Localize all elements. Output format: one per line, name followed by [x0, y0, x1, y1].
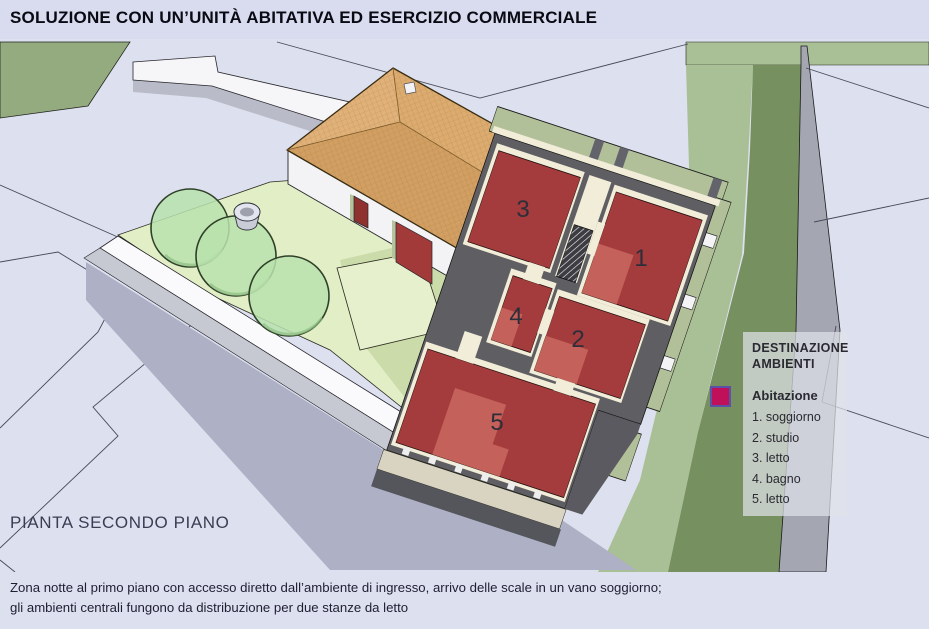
room-label-4: 4: [509, 303, 522, 330]
legend-item-studio: 2. studio: [752, 428, 843, 449]
legend-item-letto-3: 3. letto: [752, 448, 843, 469]
room-label-2: 2: [571, 326, 584, 353]
legend-item-letto-5: 5. letto: [752, 489, 843, 510]
chimney: [404, 82, 416, 94]
legend-title: DESTINAZIONE AMBIENTI: [752, 340, 843, 372]
legend-items: 1. soggiorno 2. studio 3. letto 4. bagno…: [752, 407, 843, 510]
floor-label: PIANTA SECONDO PIANO: [10, 513, 230, 533]
well: [234, 203, 260, 230]
room-label-3: 3: [516, 196, 529, 223]
title-bar: SOLUZIONE CON UN’UNITÀ ABITATIVA ED ESER…: [0, 0, 929, 39]
caption: Zona notte al primo piano con accesso di…: [0, 572, 929, 629]
legend-color-swatch: [710, 386, 731, 407]
room-label-5: 5: [490, 409, 503, 436]
room-label-1: 1: [634, 245, 647, 272]
legend-item-soggiorno: 1. soggiorno: [752, 407, 843, 428]
caption-line-2: gli ambienti centrali fungono da distrib…: [10, 598, 929, 618]
legend-group-label: Abitazione: [752, 388, 843, 403]
page-title: SOLUZIONE CON UN’UNITÀ ABITATIVA ED ESER…: [10, 8, 597, 27]
legend-item-bagno: 4. bagno: [752, 469, 843, 490]
legend-panel: DESTINAZIONE AMBIENTI Abitazione 1. sogg…: [743, 332, 847, 516]
floor-plan-3d-view: 1 2 3 4 5: [0, 0, 929, 629]
caption-line-1: Zona notte al primo piano con accesso di…: [10, 578, 929, 598]
page: 1 2 3 4 5 SOLUZIONE CON UN’UNITÀ ABITATI…: [0, 0, 929, 629]
